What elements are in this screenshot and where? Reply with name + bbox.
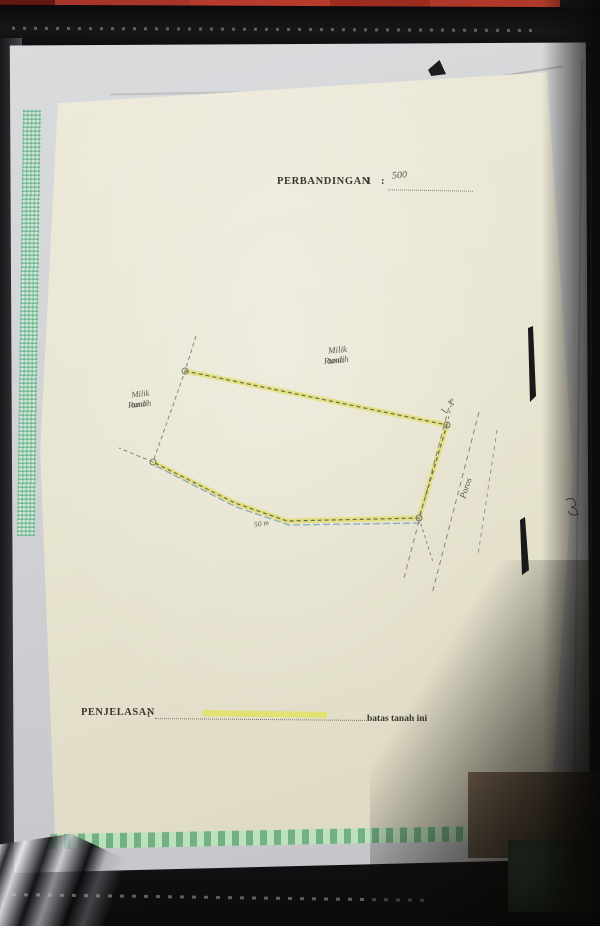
scale-colon: : (381, 176, 385, 187)
land-boundary-sketch (0, 0, 600, 926)
owner-label-top-line2: Rusdi (323, 354, 344, 366)
road-dashed-line-2 (432, 412, 479, 594)
small-scribble (566, 498, 578, 515)
boundary-highlight-line (153, 371, 447, 521)
bold-ink-mark-bottom (520, 517, 529, 575)
scale-title: PERBANDINGAN (277, 176, 370, 187)
photo-of-binder: PERBANDINGAN 1 : 500 PENJELASAN : batas … (0, 0, 600, 926)
owner-label-left-line2: Rusdi (127, 398, 147, 409)
bold-ink-mark-top (528, 326, 536, 402)
tick-mark-1 (441, 409, 447, 413)
legend-colon: : (147, 709, 151, 720)
extension-line-bottom-right (419, 518, 433, 562)
water-line (156, 466, 420, 525)
legend-title: PENJELASAN (81, 707, 155, 718)
scale-number: 1 (366, 176, 371, 187)
legend-meaning: batas tanah ini (367, 714, 427, 724)
road-dashed-line-3 (478, 430, 497, 555)
scale-dotted-line (388, 180, 473, 191)
